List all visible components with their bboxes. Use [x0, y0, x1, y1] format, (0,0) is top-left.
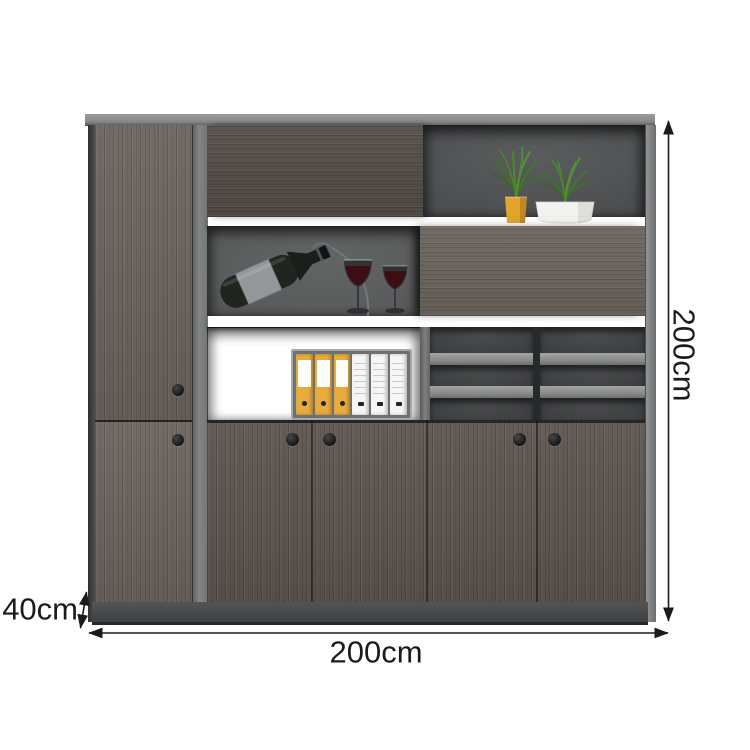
depth-dimension-label: 40cm	[2, 594, 78, 625]
product-image: 200cm 200cm 40cm	[0, 0, 750, 750]
width-dimension-label: 200cm	[329, 637, 422, 668]
depth-dimension-line	[81, 592, 87, 628]
height-dimension-label: 200cm	[669, 308, 700, 401]
